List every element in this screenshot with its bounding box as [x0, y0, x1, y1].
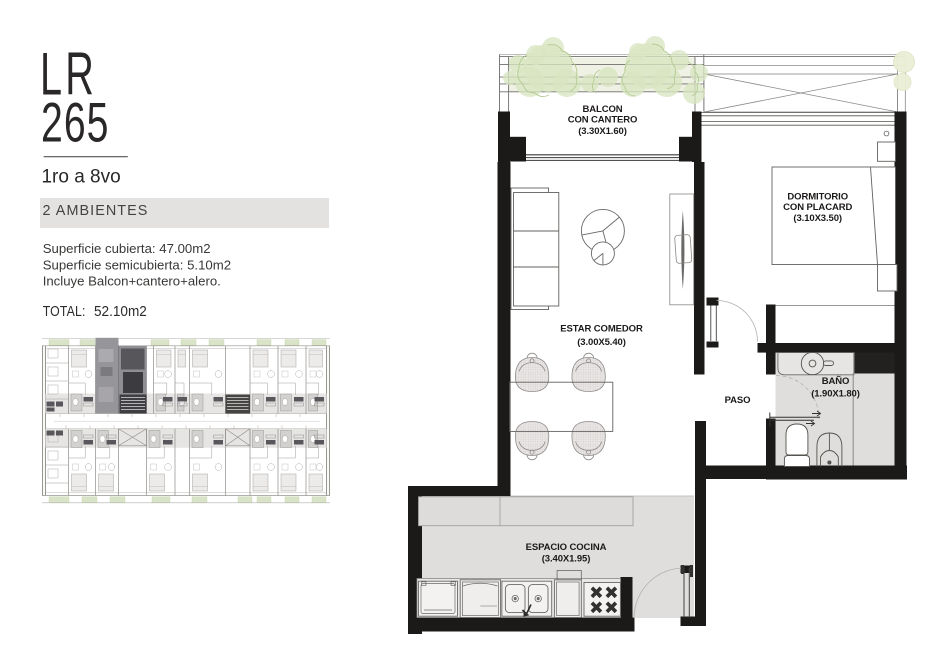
svg-text:(3.10X3.50): (3.10X3.50): [793, 213, 842, 224]
svg-text:CON CANTERO: CON CANTERO: [568, 114, 638, 125]
svg-text:ESPACIO COCINA: ESPACIO COCINA: [526, 542, 607, 553]
svg-text:(3.40X1.95): (3.40X1.95): [542, 554, 591, 565]
svg-text:(3.00X5.40): (3.00X5.40): [577, 337, 626, 348]
svg-text:1ro a 8vo: 1ro a 8vo: [42, 165, 121, 187]
svg-text:ESTAR COMEDOR: ESTAR COMEDOR: [560, 324, 643, 335]
svg-text:265: 265: [41, 92, 110, 155]
svg-text:(3.30X1.60): (3.30X1.60): [578, 126, 627, 137]
svg-text:2 AMBIENTES: 2 AMBIENTES: [43, 203, 149, 219]
svg-text:TOTAL:: TOTAL:: [43, 303, 86, 319]
svg-text:Superficie cubierta: 47.00m2: Superficie cubierta: 47.00m2: [43, 241, 211, 256]
svg-text:CON PLACARD: CON PLACARD: [783, 202, 852, 213]
svg-text:52.10m2: 52.10m2: [94, 303, 147, 319]
svg-text:BAÑO: BAÑO: [822, 376, 850, 387]
svg-text:PASO: PASO: [725, 395, 751, 406]
svg-text:Superficie semicubierta: 5.10m: Superficie semicubierta: 5.10m2: [43, 257, 231, 272]
svg-text:Incluye Balcon+cantero+alero.: Incluye Balcon+cantero+alero.: [43, 273, 221, 288]
svg-text:(1.90X1.80): (1.90X1.80): [811, 389, 860, 400]
